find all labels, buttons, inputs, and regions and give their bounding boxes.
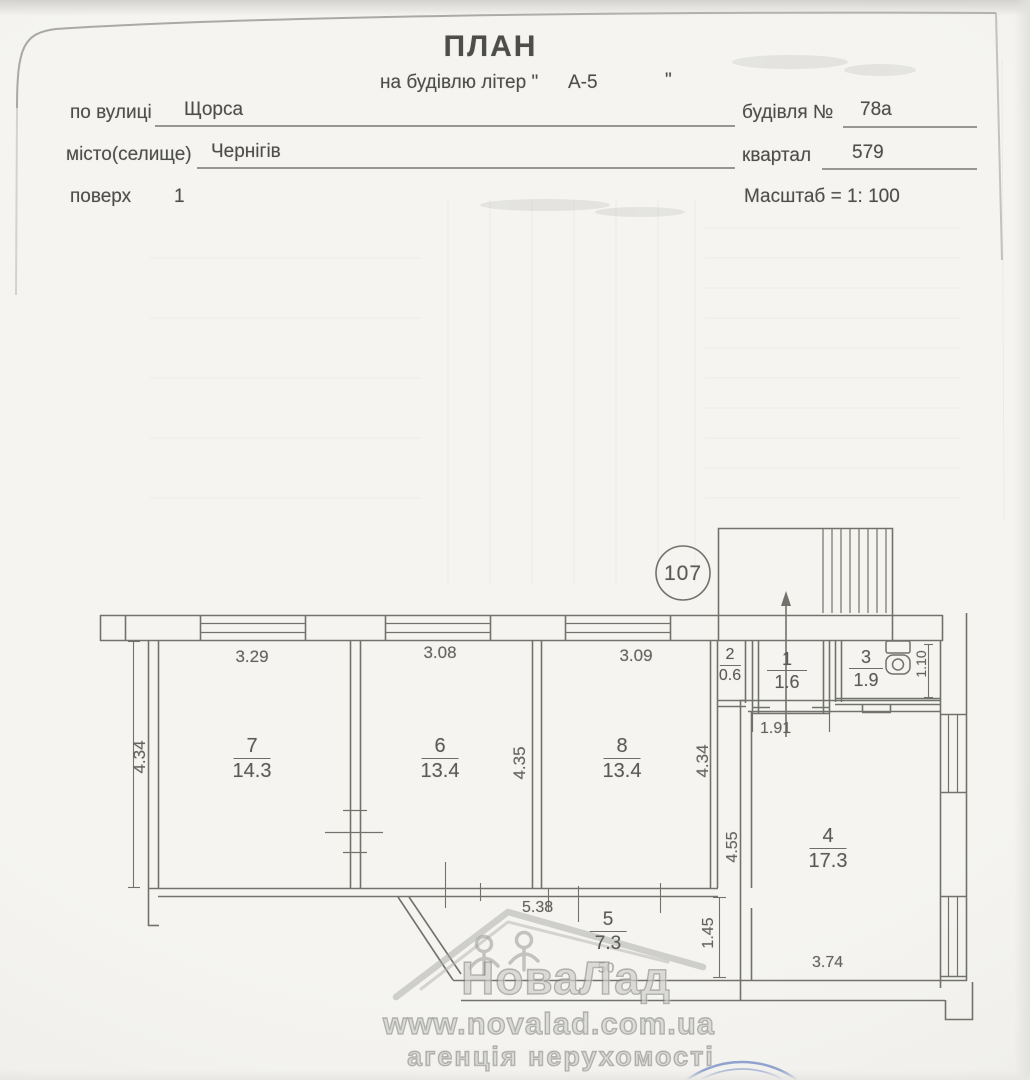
ghost-bleed-lines xyxy=(448,60,1004,585)
room-number: 3 xyxy=(849,648,883,669)
dim-wc-width: 1.10 xyxy=(913,650,929,677)
room-area: 13.4 xyxy=(603,759,642,782)
room-label-6: 6 13.4 xyxy=(421,736,460,782)
room-label-5: 5 7.3 xyxy=(590,910,627,954)
building-letter-value: А-5 xyxy=(568,72,598,94)
room-number: 6 xyxy=(421,736,458,759)
scanned-floor-plan-page: ПЛАН на будівлю літер " А-5 " по вулиці … xyxy=(0,0,1030,1080)
subtitle-suffix: " xyxy=(665,70,672,92)
room-area: 13.4 xyxy=(421,759,460,782)
subtitle-prefix: на будівлю літер " xyxy=(380,72,538,94)
dim-room7-width: 3.29 xyxy=(235,647,268,667)
watermark-url: www.novalad.com.ua xyxy=(383,1006,715,1042)
scale-label: Масштаб = 1: 100 xyxy=(744,186,900,208)
room-label-1: 1 1.6 xyxy=(767,650,807,692)
dim-room4-width: 3.74 xyxy=(812,954,843,972)
block-underline xyxy=(822,168,977,170)
building-number-underline xyxy=(843,126,977,128)
room-area: 14.3 xyxy=(233,759,272,782)
room-area: 1.9 xyxy=(853,669,878,690)
room-label-7: 7 14.3 xyxy=(233,736,272,782)
plan-walls xyxy=(100,529,973,1020)
room-label-3: 3 1.9 xyxy=(849,648,883,690)
ghost-bleed-rows xyxy=(150,258,420,498)
city-label: місто(селище) xyxy=(66,144,192,166)
room-label-4: 4 17.3 xyxy=(809,826,848,872)
dim-room4-height: 4.55 xyxy=(724,831,742,862)
floor-value: 1 xyxy=(174,186,185,208)
room-label-2: 2 0.6 xyxy=(719,647,741,685)
block-value: 579 xyxy=(852,142,884,164)
dim-room8-height: 4.34 xyxy=(693,744,713,777)
dim-room6-width: 3.08 xyxy=(423,643,456,663)
building-number-label: будівля № xyxy=(742,102,833,124)
street-value: Щорса xyxy=(184,99,243,121)
room-number: 4 xyxy=(809,826,846,849)
building-number-value: 78а xyxy=(860,99,892,121)
dim-room6-height: 4.35 xyxy=(510,746,530,779)
room-label-8: 8 13.4 xyxy=(603,736,642,782)
dim-hall-height: 1.45 xyxy=(700,917,718,948)
watermark-name: НоваЛад xyxy=(461,951,671,1005)
city-underline xyxy=(197,167,735,169)
room-number: 5 xyxy=(590,910,627,932)
room-area: 1.6 xyxy=(774,671,799,692)
room-number: 1 xyxy=(767,650,807,671)
scan-edge-top xyxy=(0,0,1030,16)
block-label: квартал xyxy=(742,145,811,167)
watermark-tagline: агенція нерухомості xyxy=(407,1042,715,1073)
room-number: 7 xyxy=(233,736,270,759)
floor-label: поверх xyxy=(70,186,131,208)
dim-room8-width: 3.09 xyxy=(619,646,652,666)
street-underline xyxy=(155,125,735,127)
dim-vestibule-width: 1.91 xyxy=(760,720,791,738)
page-title: ПЛАН xyxy=(383,30,598,64)
dim-corridor-width: 5.38 xyxy=(522,899,553,917)
scan-edge-bottom xyxy=(0,1070,1030,1080)
street-label: по вулиці xyxy=(70,102,152,124)
room-number: 8 xyxy=(603,736,640,759)
scan-edge-right xyxy=(1014,0,1030,1080)
stair-treads xyxy=(823,529,886,614)
toilet-icon xyxy=(886,641,910,674)
unit-number: 107 xyxy=(664,562,702,586)
room-area: 0.6 xyxy=(719,666,741,685)
city-value: Чернігів xyxy=(211,141,281,163)
room-number: 2 xyxy=(720,647,741,666)
dim-room7-height: 4.34 xyxy=(130,740,150,773)
room-area: 17.3 xyxy=(809,849,848,872)
